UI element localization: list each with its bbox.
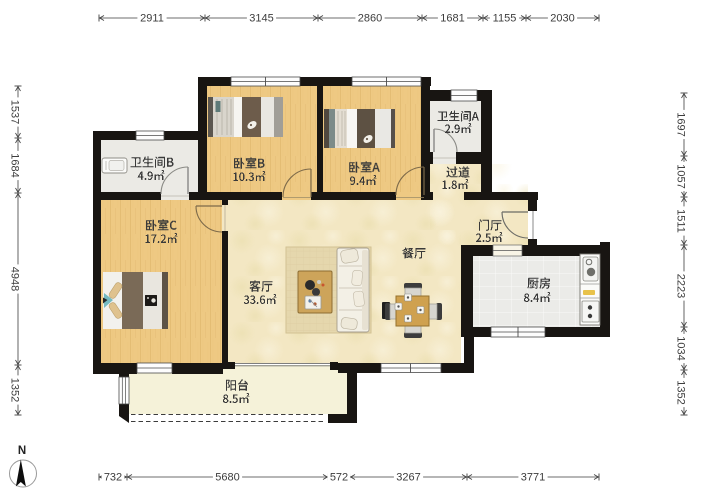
- svg-text:1057: 1057: [674, 164, 686, 188]
- svg-text:1511: 1511: [674, 209, 686, 233]
- svg-text:1034: 1034: [674, 336, 686, 360]
- svg-text:1155: 1155: [493, 13, 517, 25]
- svg-text:732: 732: [104, 472, 122, 484]
- svg-text:2860: 2860: [358, 13, 382, 25]
- svg-text:3771: 3771: [521, 472, 545, 484]
- svg-text:3145: 3145: [249, 13, 273, 25]
- svg-text:1352: 1352: [674, 380, 686, 404]
- svg-text:4948: 4948: [8, 267, 20, 291]
- svg-text:2030: 2030: [550, 13, 574, 25]
- svg-text:3267: 3267: [396, 472, 420, 484]
- svg-text:1352: 1352: [8, 378, 20, 402]
- svg-text:2223: 2223: [674, 274, 686, 298]
- svg-text:1697: 1697: [674, 112, 686, 136]
- svg-text:5680: 5680: [215, 472, 239, 484]
- svg-text:1537: 1537: [8, 100, 20, 124]
- svg-text:1681: 1681: [440, 13, 464, 25]
- svg-text:572: 572: [330, 472, 348, 484]
- svg-text:2911: 2911: [140, 13, 164, 25]
- svg-text:1684: 1684: [8, 153, 20, 177]
- svg-text:N: N: [18, 445, 26, 457]
